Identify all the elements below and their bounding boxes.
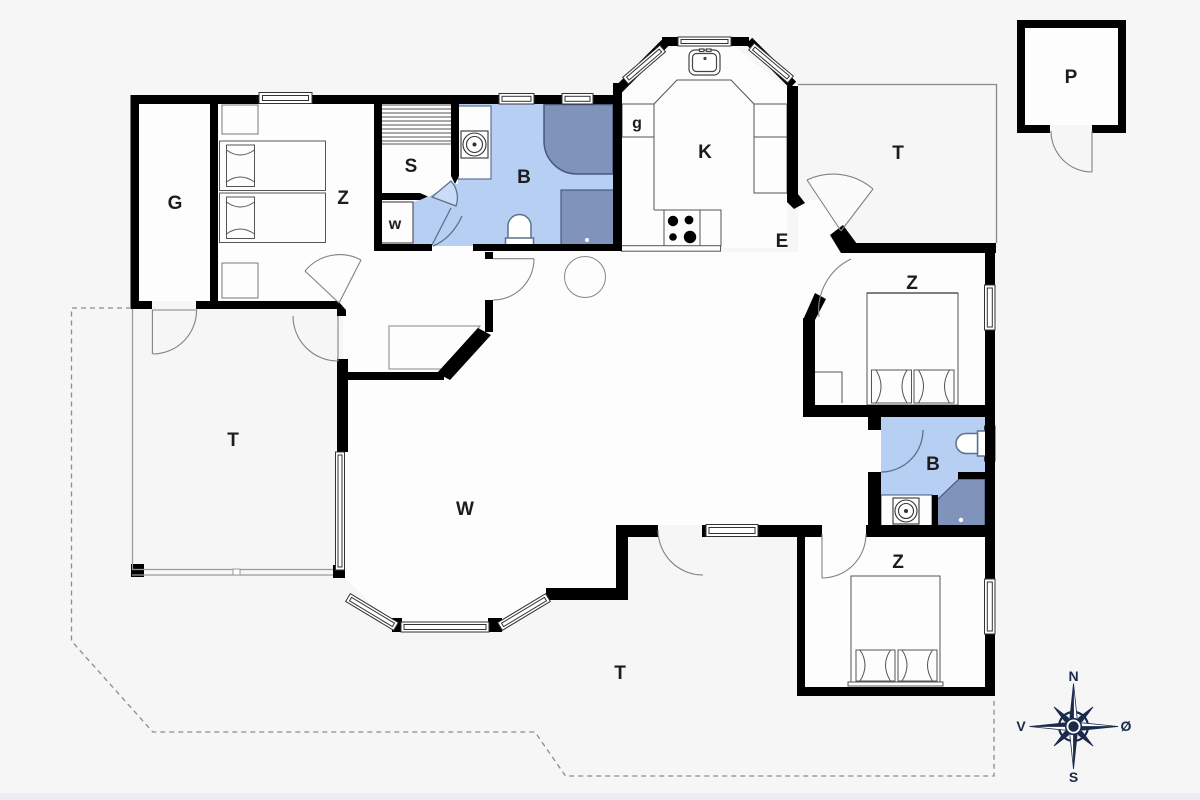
svg-text:S: S <box>1069 769 1078 785</box>
svg-text:B: B <box>517 167 531 188</box>
svg-text:K: K <box>698 142 712 163</box>
svg-text:Z: Z <box>337 188 349 209</box>
svg-text:g: g <box>632 115 642 132</box>
svg-text:T: T <box>892 143 904 164</box>
svg-text:S: S <box>405 156 418 177</box>
svg-text:T: T <box>227 430 239 451</box>
svg-text:G: G <box>168 193 183 214</box>
svg-text:T: T <box>614 663 626 684</box>
svg-text:Z: Z <box>892 552 904 573</box>
svg-text:w: w <box>388 216 402 233</box>
svg-text:P: P <box>1065 67 1078 88</box>
svg-text:W: W <box>456 499 474 520</box>
svg-text:Z: Z <box>906 273 918 294</box>
svg-text:B: B <box>926 454 940 475</box>
svg-text:Ø: Ø <box>1121 718 1132 734</box>
svg-text:E: E <box>776 231 789 252</box>
svg-text:N: N <box>1068 668 1078 684</box>
svg-text:V: V <box>1016 718 1026 734</box>
